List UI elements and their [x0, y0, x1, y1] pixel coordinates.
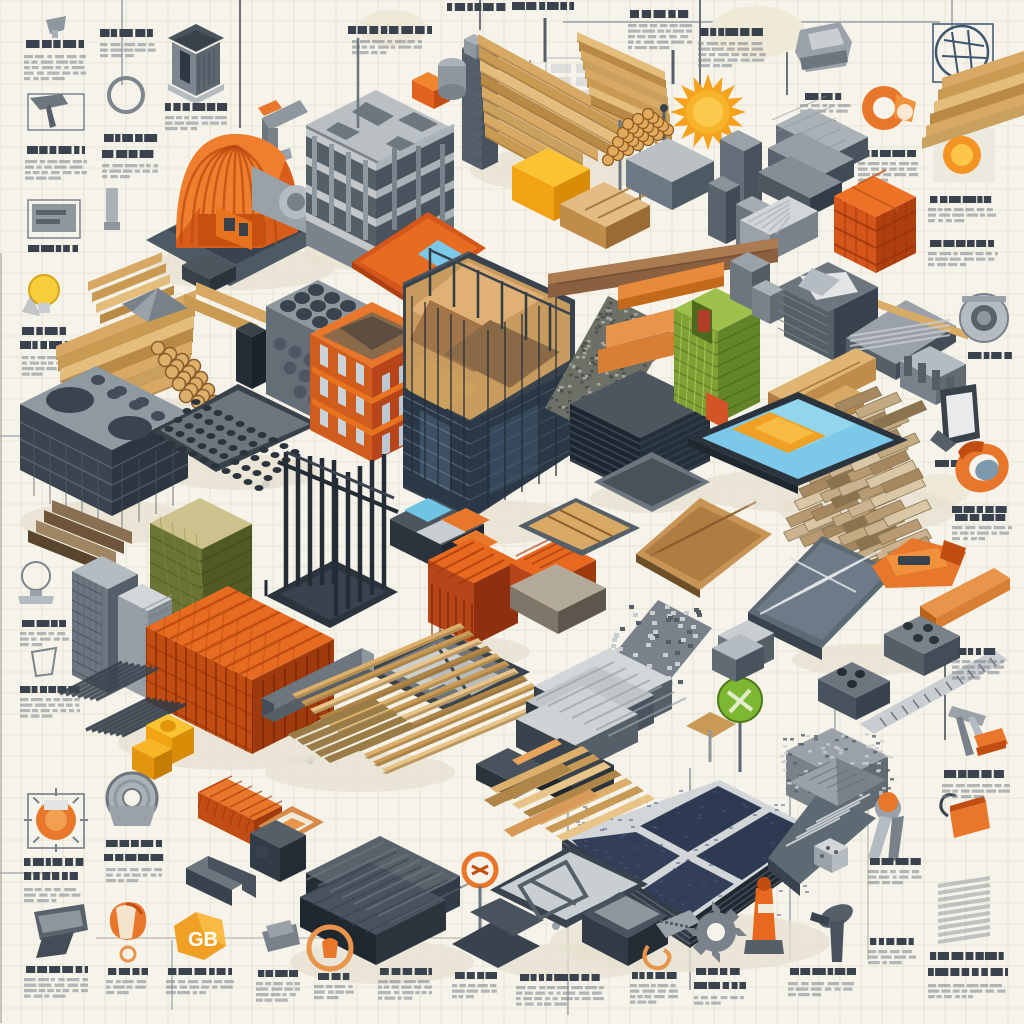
svg-text:GB: GB [188, 929, 218, 951]
